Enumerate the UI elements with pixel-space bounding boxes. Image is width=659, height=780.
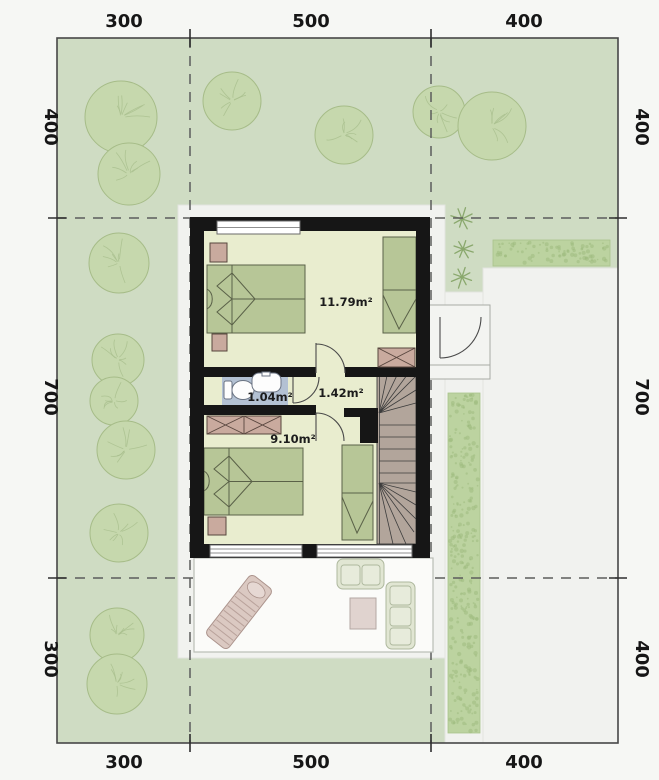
hedge-texture (581, 244, 585, 248)
hedge-texture (476, 539, 479, 542)
paved-right-area (483, 268, 618, 743)
hedge-texture (602, 247, 604, 249)
hedge-texture (467, 598, 469, 600)
hedge-texture (523, 261, 527, 265)
hedge-texture (456, 596, 458, 598)
hedge-texture (456, 403, 460, 407)
hedge-texture (449, 625, 453, 629)
hedge-texture (451, 548, 453, 550)
hedge-texture (457, 712, 459, 714)
hedge-texture (520, 242, 522, 244)
hedge-texture (464, 452, 468, 456)
hedge-texture (472, 692, 476, 696)
hedge-texture (455, 428, 458, 431)
hedge-texture (467, 587, 471, 591)
hedge-texture (476, 445, 479, 448)
sink-icon (252, 372, 281, 392)
hedge-texture (449, 445, 452, 448)
hedge-texture (460, 460, 462, 462)
hedge-texture (500, 251, 503, 254)
hedge-texture (464, 538, 467, 541)
hedge-texture (455, 397, 457, 399)
wardrobe-icon (378, 348, 415, 367)
hedge-texture (458, 686, 462, 690)
hedge-texture (546, 247, 548, 249)
hedge-texture (476, 598, 479, 601)
hedge-texture (460, 717, 464, 721)
wall-exterior-right (416, 217, 430, 558)
hedge-texture (449, 415, 452, 418)
hedge-texture (463, 501, 465, 503)
dim-top-400: 400 (505, 11, 543, 32)
hedge-texture (471, 528, 475, 532)
hedge-texture (474, 676, 477, 679)
hedge-texture (451, 662, 454, 665)
hedge-texture (571, 243, 574, 246)
hedge-texture (474, 729, 477, 732)
hedge-texture (460, 593, 463, 596)
hedge-texture (476, 689, 478, 691)
hedge-texture (463, 674, 467, 678)
hedge-texture (467, 666, 471, 670)
hedge-texture (469, 579, 472, 582)
tree-icon (90, 377, 138, 425)
hedge-texture (564, 259, 568, 263)
hedge-texture (451, 637, 455, 641)
hedge-texture (573, 253, 577, 257)
hedge-texture (467, 603, 470, 606)
hedge-texture (473, 468, 477, 472)
sofa-icon (386, 582, 415, 649)
hedge-texture (459, 432, 461, 434)
hedge-texture (476, 477, 480, 481)
hedge-texture (567, 250, 570, 253)
hedge-texture (465, 706, 467, 708)
hedge-texture (510, 248, 513, 251)
hedge-texture (471, 506, 475, 510)
tree-icon (98, 143, 160, 205)
tree-icon (97, 421, 155, 479)
hedge-texture (454, 432, 456, 434)
hedge-texture (474, 603, 476, 605)
hedge-texture (452, 451, 454, 453)
hedge-texture (456, 718, 460, 722)
hedge-texture (454, 606, 458, 610)
hedge-texture (461, 607, 464, 610)
hedge-texture (462, 642, 466, 646)
hedge-texture (508, 242, 510, 244)
hedge-texture (470, 583, 472, 585)
hedge-texture (473, 642, 476, 645)
hedge-texture (460, 549, 464, 553)
window-icon (217, 221, 300, 234)
hedge-texture (466, 511, 469, 514)
hedge-texture (467, 636, 471, 640)
hedge-texture (450, 554, 453, 557)
hedge-texture (473, 426, 476, 429)
dim-left-400: 400 (40, 108, 61, 146)
hedge-texture (455, 476, 459, 480)
hedge-texture (589, 243, 591, 245)
hedge-texture (453, 503, 455, 505)
hedge-texture (461, 579, 464, 582)
hedge-texture (454, 555, 457, 558)
nightstand-icon (210, 243, 227, 262)
hedge-texture (462, 456, 465, 459)
tree-icon (315, 106, 373, 164)
hedge-texture (460, 451, 462, 453)
dim-left-300: 300 (40, 640, 61, 678)
hedge-texture (469, 398, 473, 402)
hedge-texture (558, 251, 560, 253)
nightstand-icon (208, 517, 226, 535)
hedge-texture (463, 413, 465, 415)
hedge-texture (469, 559, 471, 561)
hedge-texture (454, 640, 457, 643)
hedge-texture (469, 614, 473, 618)
double-bed-icon (204, 448, 303, 515)
hedge-texture (455, 485, 457, 487)
hedge-texture (452, 670, 454, 672)
window-icon (317, 545, 412, 557)
hedge-texture (462, 543, 466, 547)
hedge-texture (451, 401, 455, 405)
hedge-texture (467, 421, 470, 424)
hedge-texture (585, 245, 588, 248)
hedge-texture (450, 607, 453, 610)
terrace-table-icon (350, 598, 376, 629)
hedge-texture (455, 663, 457, 665)
hedge-texture (461, 487, 463, 489)
hedge-texture (474, 635, 478, 639)
hedge-texture (456, 502, 459, 505)
hedge-texture (582, 251, 586, 255)
hedge-texture (472, 567, 474, 569)
nightstand-icon (212, 334, 227, 351)
hedge-texture (449, 617, 453, 621)
hedge-texture (462, 722, 465, 725)
hedge-texture (457, 617, 459, 619)
hedge-texture (470, 532, 472, 534)
entrance-porch (428, 305, 490, 379)
hedge-texture (562, 252, 566, 256)
hedge-texture (459, 533, 463, 537)
hedge-texture (602, 242, 604, 244)
hedge-texture (467, 507, 471, 511)
dim-left-700: 700 (40, 378, 61, 416)
hedge-texture (464, 611, 468, 615)
dim-right-400b: 400 (631, 640, 652, 678)
hedge-texture (461, 554, 464, 557)
hedge-texture (465, 607, 467, 609)
hedge-texture (460, 605, 462, 607)
hedge-texture (593, 259, 597, 263)
tree-icon (89, 233, 149, 293)
hedge-texture (465, 535, 469, 539)
hedge-texture (475, 704, 479, 708)
hedge-texture (589, 255, 593, 259)
hedge-texture (468, 606, 470, 608)
hedge-texture (450, 598, 454, 602)
hedge-texture (449, 438, 453, 442)
hedge-texture (580, 248, 583, 251)
hedge-texture (472, 700, 476, 704)
hedge-texture (453, 680, 455, 682)
hedge-texture (456, 621, 459, 624)
hedge-texture (501, 242, 504, 245)
hedge-texture (454, 480, 458, 484)
hedge-texture (558, 247, 561, 250)
hedge-texture (448, 718, 452, 722)
hedge-texture (460, 710, 462, 712)
hedge-texture (450, 550, 453, 553)
dim-top-300: 300 (105, 11, 143, 32)
hedge-texture (466, 562, 470, 566)
room-area-label-hall: 1.42m² (318, 386, 363, 400)
hedge-texture (463, 398, 466, 401)
hedge-texture (461, 636, 464, 639)
hedge-texture (460, 698, 463, 701)
hedge-texture (452, 590, 454, 592)
hedge-texture (454, 603, 457, 606)
hedge-texture (463, 688, 467, 692)
hedge-texture (463, 446, 466, 449)
hedge-texture (528, 241, 532, 245)
hedge-texture (589, 260, 591, 262)
hedge-texture (582, 256, 586, 260)
hedge-texture (521, 250, 524, 253)
hedge-texture (474, 721, 478, 725)
hedge-texture (453, 721, 456, 724)
hedge-texture (454, 515, 457, 518)
hedge-texture (465, 531, 469, 535)
hedge-texture (468, 447, 472, 451)
hedge-texture (466, 472, 468, 474)
hedge-texture (498, 243, 500, 245)
hedge-texture (517, 251, 519, 253)
hedge-texture (454, 699, 457, 702)
hedge-texture (471, 713, 473, 715)
dim-bottom-300: 300 (105, 752, 143, 773)
hedge-texture (451, 455, 453, 457)
hedge-texture (477, 485, 479, 487)
wall (360, 408, 378, 443)
hedge-texture (545, 242, 549, 246)
hedge-texture (472, 411, 475, 414)
hedge-texture (468, 410, 472, 414)
hedge-texture (457, 652, 461, 656)
hedge-texture (451, 474, 454, 477)
double-bed-icon (207, 265, 305, 333)
hedge-texture (451, 526, 453, 528)
tree-icon (90, 504, 148, 562)
hedge-texture (450, 647, 453, 650)
tree-icon (87, 654, 147, 714)
hedge-texture (606, 245, 609, 248)
site-plan-drawing: 11.79m² 1.42m² 1.04m² 9.10m² 300 500 400… (0, 0, 659, 780)
dim-bottom-500: 500 (292, 752, 330, 773)
hedge-texture (466, 646, 468, 648)
wall (190, 405, 316, 415)
hedge-texture (457, 540, 459, 542)
single-bed-icon (342, 445, 373, 540)
hedge-texture (455, 409, 459, 413)
hedge-texture (454, 453, 458, 457)
hedge-texture (452, 581, 455, 584)
hedge-texture (469, 463, 472, 466)
hedge-texture (476, 691, 479, 694)
hedge-texture (456, 562, 459, 565)
hedge-texture (549, 259, 553, 263)
hedge-texture (558, 254, 561, 257)
hedge-texture (590, 244, 594, 248)
hedge-texture (458, 525, 460, 527)
room-area-label-bathroom: 1.04m² (247, 390, 292, 404)
hedge-texture (466, 396, 468, 398)
hedge-texture (449, 435, 451, 437)
staircase (377, 371, 416, 544)
hedge-texture (470, 645, 474, 649)
site-plan: 11.79m² 1.42m² 1.04m² 9.10m² 300 500 400… (0, 0, 659, 780)
dim-top-500: 500 (292, 11, 330, 32)
hedge-texture (460, 464, 464, 468)
tree-icon (413, 86, 465, 138)
hedge-texture (454, 585, 457, 588)
dim-right-700: 700 (631, 378, 652, 416)
hedge-texture (474, 711, 477, 714)
hedge-texture (453, 674, 455, 676)
hedge-texture (546, 258, 550, 262)
hedge-texture (471, 459, 474, 462)
tree-icon (85, 81, 157, 153)
wall-exterior-left (190, 217, 204, 558)
hedge-texture (457, 553, 459, 555)
hedge-texture (450, 710, 452, 712)
house: 11.79m² 1.42m² 1.04m² 9.10m² (190, 217, 430, 558)
hedge-texture (460, 659, 463, 662)
hedge-texture (468, 462, 470, 464)
room-area-label-bedroom1: 11.79m² (319, 295, 372, 309)
hedge-texture (474, 400, 478, 404)
hedge-texture (475, 697, 479, 701)
hedge-texture (469, 570, 473, 574)
hedge-texture (472, 441, 476, 445)
hedge-texture (464, 437, 467, 440)
hedge-texture (460, 455, 462, 457)
hedge-texture (468, 443, 471, 446)
hedge-texture (460, 673, 462, 675)
hedge-texture (449, 674, 453, 678)
hedge-texture (550, 246, 554, 250)
hedge-texture (468, 704, 471, 707)
hedge-texture (461, 405, 464, 408)
hedge-texture (471, 417, 475, 421)
tree-icon (203, 72, 261, 130)
hedge-texture (472, 536, 475, 539)
hedge-texture (456, 529, 460, 533)
hedge-texture (455, 675, 458, 678)
hedge-texture (454, 670, 458, 674)
hedge-texture (531, 254, 535, 258)
hedge-texture (469, 500, 472, 503)
hedge-texture (472, 723, 475, 726)
hedge-texture (475, 618, 478, 621)
hedge-texture (551, 254, 555, 258)
tree-icon (458, 92, 526, 160)
hedge-texture (452, 530, 454, 532)
single-bed-icon (383, 237, 416, 333)
hedge-texture (469, 427, 472, 430)
hedge-texture (463, 524, 465, 526)
hedge-texture (504, 254, 507, 257)
hedge-texture (602, 257, 606, 261)
hedge-texture (539, 244, 541, 246)
hedge-texture (467, 483, 469, 485)
hedge-texture (449, 543, 452, 546)
hedge-texture (459, 504, 461, 506)
hedge-texture (473, 454, 475, 456)
hedge-texture (451, 496, 454, 499)
hedge-texture (463, 566, 466, 569)
hedge-texture (453, 509, 457, 513)
hedge-texture (473, 651, 477, 655)
hedge-texture (451, 567, 453, 569)
hedge-texture (474, 591, 478, 595)
loveseat-icon (337, 559, 384, 589)
hedge-texture (466, 522, 470, 526)
hedge-texture (542, 242, 544, 244)
hedge-texture (459, 682, 461, 684)
dim-right-400: 400 (631, 108, 652, 146)
hedge-texture (470, 496, 473, 499)
hedge-texture (462, 448, 464, 450)
dim-bottom-400: 400 (505, 752, 543, 773)
hedge-texture (462, 562, 465, 565)
hedge-texture (579, 257, 581, 259)
hedge-texture (461, 632, 463, 634)
terrace (194, 558, 433, 652)
hedge-texture (510, 243, 514, 247)
hedge-texture (476, 554, 478, 556)
hedge-texture (473, 668, 477, 672)
room-area-label-bedroom2: 9.10m² (270, 432, 315, 446)
hedge-texture (468, 729, 472, 733)
hedge-texture (538, 252, 540, 254)
hedge-texture (591, 259, 594, 262)
hedge-texture (452, 545, 455, 548)
hedge-texture (586, 249, 590, 253)
hedge-texture (449, 583, 452, 586)
hedge-texture (531, 260, 533, 262)
hedge-texture (466, 399, 469, 402)
hedge-texture (469, 488, 473, 492)
hedge-texture (461, 508, 463, 510)
hedge-texture (572, 249, 575, 252)
hedge-texture (499, 246, 501, 248)
hedge-texture (454, 547, 458, 551)
hedge-texture (525, 248, 527, 250)
hedge-texture (459, 513, 463, 517)
hedge-texture (470, 709, 472, 711)
hedge-texture (455, 462, 457, 464)
hedge-texture (497, 251, 500, 254)
hedge-texture (597, 259, 599, 261)
hedge-texture (464, 692, 466, 694)
hedge-texture (468, 423, 471, 426)
hedge-texture (577, 260, 580, 263)
hedge-texture (450, 514, 453, 517)
hedge-texture (452, 559, 456, 563)
